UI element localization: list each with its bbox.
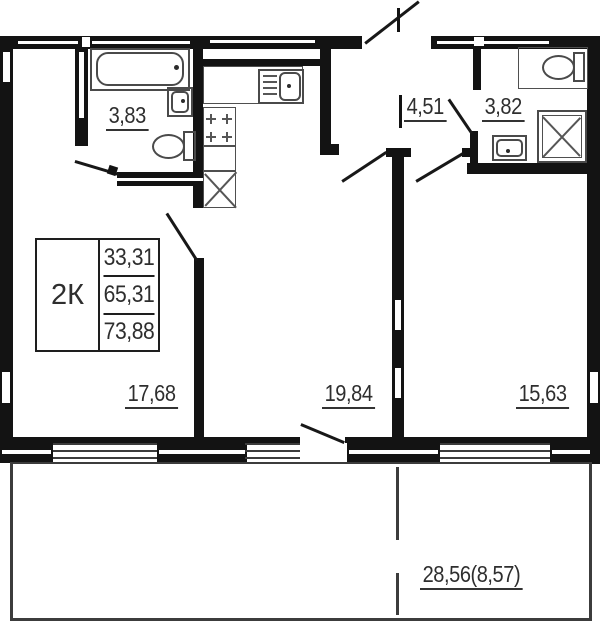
- sink-icon: [496, 139, 523, 157]
- toilet-icon: [183, 131, 196, 161]
- bathroom2-door-leaf: [448, 98, 473, 133]
- wall-joint: [79, 52, 84, 118]
- stove-burner: [226, 114, 228, 124]
- living-room-door-leaf: [341, 151, 387, 182]
- room-label-hallway: 4,51: [404, 94, 446, 122]
- wall-joint: [395, 368, 401, 398]
- stove-burner: [210, 114, 212, 124]
- toilet-icon: [573, 52, 585, 82]
- wall-joint: [117, 178, 203, 181]
- sink-drain: [181, 99, 185, 103]
- legend-area-row: 73,88: [103, 313, 154, 350]
- wall-joint: [210, 40, 315, 43]
- kitchen-counter: [203, 146, 236, 171]
- wall-joint: [159, 450, 245, 454]
- bathtub-icon: [96, 52, 184, 86]
- balcony-divider-dash: [396, 467, 399, 540]
- window: [245, 443, 300, 445]
- wall: [331, 144, 339, 155]
- room-label-bedroom-2: 15,63: [516, 381, 569, 409]
- wall-joint: [82, 37, 90, 47]
- stove-burner: [226, 132, 228, 142]
- wall-joint: [92, 41, 190, 44]
- kitchen-sink-icon: [263, 81, 277, 83]
- wall-joint: [3, 52, 10, 82]
- legend-table: 2К 33,31 65,31 73,88: [35, 238, 160, 352]
- wall-joint: [590, 372, 598, 403]
- wall: [194, 258, 204, 443]
- wall-joint: [552, 450, 590, 454]
- kitchen-sink-icon: [263, 93, 277, 95]
- wall: [473, 47, 481, 90]
- sink-drain: [506, 149, 510, 153]
- wall-joint: [395, 300, 401, 330]
- kitchen-sink-icon: [263, 75, 277, 77]
- window: [440, 450, 550, 452]
- apartment-type-label: 2К: [37, 240, 98, 350]
- bedroom1-door-leaf: [166, 212, 198, 261]
- balcony-door-leaf: [301, 423, 345, 443]
- wall-joint: [437, 41, 549, 44]
- balcony-edge: [10, 618, 592, 621]
- wall: [320, 47, 331, 155]
- wall-joint: [349, 450, 438, 454]
- entrance-door-leaf: [364, 0, 419, 44]
- room-label-bedroom-1: 17,68: [125, 381, 178, 409]
- wall-joint: [2, 450, 51, 454]
- stove-burner: [210, 132, 212, 142]
- wall-joint: [2, 372, 10, 403]
- room-label-bathroom-1: 3,83: [106, 103, 148, 131]
- room-label-bathroom-2: 3,82: [482, 94, 524, 122]
- window: [53, 457, 157, 459]
- kitchen-sink-drain: [287, 84, 291, 88]
- wall: [203, 59, 321, 66]
- balcony-edge: [589, 464, 592, 621]
- wall: [467, 163, 588, 174]
- room-label-balcony: 28,56(8,57): [420, 562, 523, 590]
- window: [245, 457, 300, 459]
- window: [440, 457, 550, 459]
- wall-joint: [18, 41, 78, 44]
- stove-icon: [203, 107, 236, 146]
- wall: [462, 148, 478, 157]
- legend-area-row: 33,31: [103, 240, 154, 275]
- toilet-icon: [542, 55, 575, 80]
- hallway-label-tick: [399, 95, 402, 128]
- bathtub-drain: [174, 65, 179, 70]
- window: [53, 450, 157, 452]
- balcony-divider-dash: [396, 573, 399, 615]
- window: [53, 443, 157, 445]
- room-label-living-kitchen: 19,84: [322, 381, 375, 409]
- balcony-edge: [10, 464, 13, 621]
- wall: [386, 148, 411, 157]
- legend-areas: 33,31 65,31 73,88: [98, 240, 158, 350]
- toilet-icon: [152, 134, 185, 159]
- balcony-edge: [10, 462, 592, 464]
- window: [245, 450, 300, 452]
- entrance-axis-tick: [397, 8, 400, 32]
- sink-icon: [171, 91, 189, 113]
- floor-plan: 2К 33,31 65,31 73,88 3,83 4,51 3,82 17,6…: [0, 0, 600, 629]
- window: [440, 443, 550, 445]
- bedroom2-door-leaf: [415, 152, 464, 182]
- legend-area-row: 65,31: [103, 275, 154, 312]
- kitchen-sink-icon: [263, 87, 277, 89]
- wall-joint: [474, 37, 484, 46]
